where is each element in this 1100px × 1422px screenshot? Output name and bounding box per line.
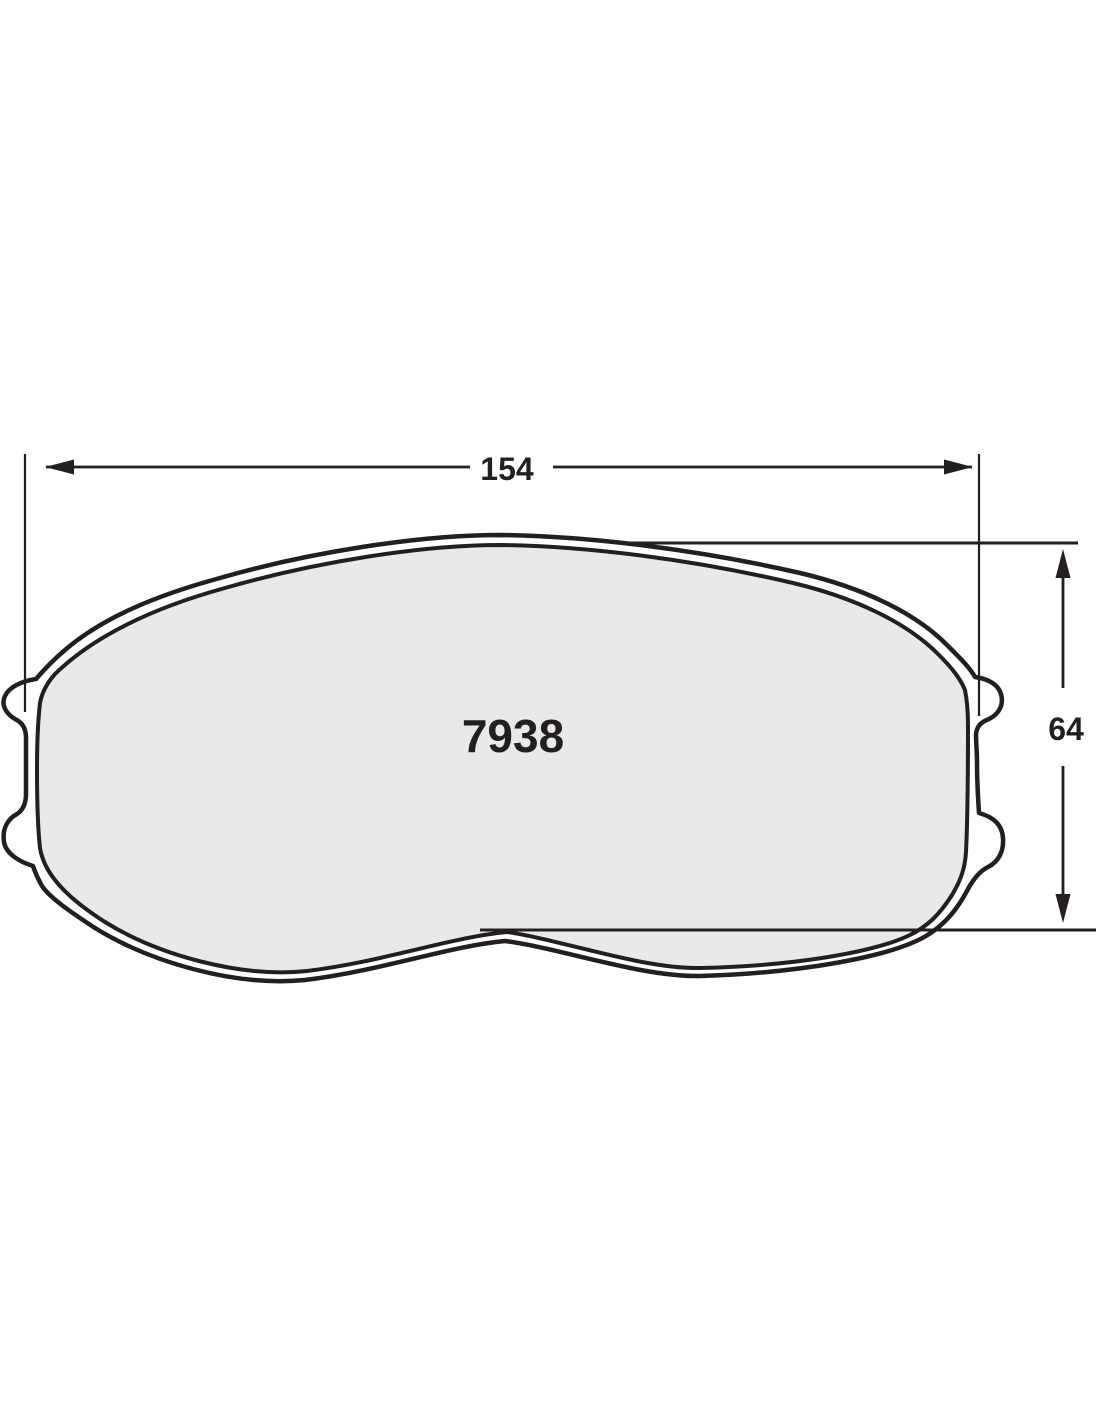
height-dimension-label: 64 — [1048, 711, 1084, 747]
width-arrow-left-icon — [45, 460, 74, 475]
part-number-label: 7938 — [462, 710, 564, 762]
width-dimension-label: 154 — [480, 451, 534, 487]
height-arrow-down-icon — [1056, 894, 1071, 923]
height-arrow-up-icon — [1056, 549, 1071, 578]
drawing-svg: 154 64 7938 — [0, 0, 1100, 1422]
brake-pad-technical-drawing: 154 64 7938 — [0, 0, 1100, 1422]
width-arrow-right-icon — [944, 460, 973, 475]
